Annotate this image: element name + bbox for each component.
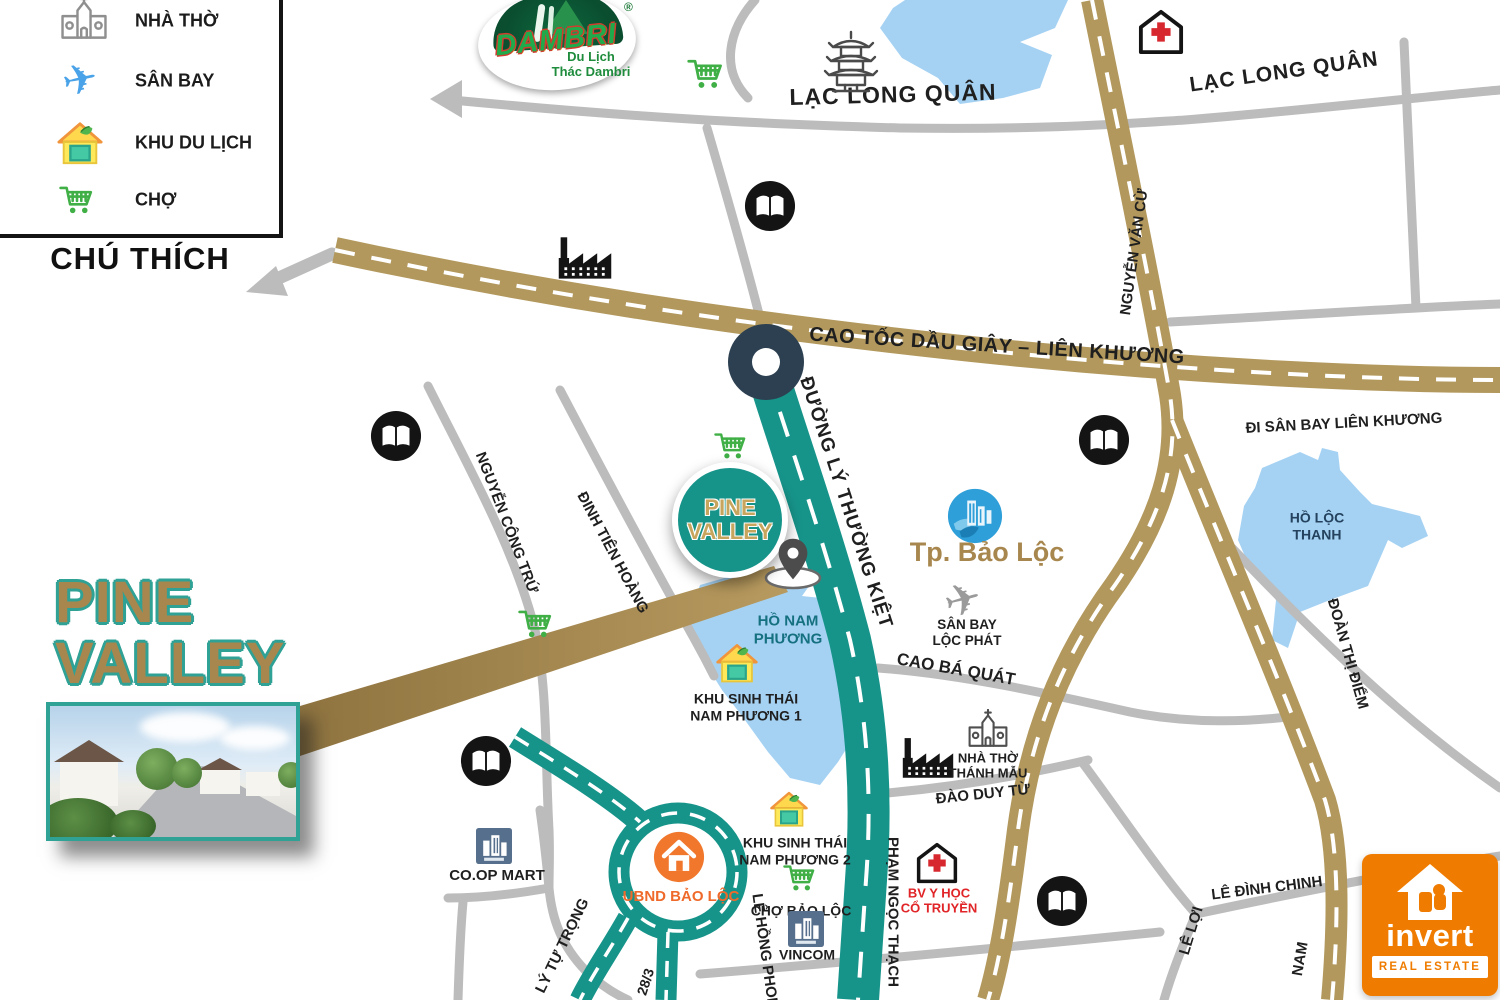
nha-tho-thanh-mau-label: NHÀ THỜTHÁNH MẪU <box>949 751 1028 782</box>
coop-mart-label: CO.OP MART <box>449 868 545 885</box>
project-title-line2: VALLEY <box>55 633 286 694</box>
project-photo <box>46 702 300 841</box>
coop-mart-building-icon <box>476 828 512 864</box>
road-label-pham-ngoc-thach: PHẠM NGỌC THẠCH <box>884 837 901 987</box>
market-cart-icon <box>713 428 749 464</box>
road-pagoda-loop <box>730 0 755 98</box>
invert-house-thumb-icon <box>1393 862 1467 922</box>
market-cart-icon <box>58 181 96 219</box>
invert-logo: invert REAL ESTATE <box>1362 854 1498 996</box>
market-cart-icon <box>686 54 726 94</box>
airport-label: SÂN BAYLỘC PHÁT <box>933 617 1002 649</box>
school-book-icon <box>1036 875 1088 927</box>
tourism-area-icon <box>55 119 105 167</box>
lake-label-ho-nam-phuong: HỒ NAMPHƯƠNG <box>754 612 823 647</box>
school-book-icon <box>370 410 422 462</box>
project-title: PINE VALLEY <box>55 572 286 695</box>
pine-valley-badge-line1: PINE <box>704 496 755 520</box>
arrow-head-west-road <box>430 80 462 118</box>
road-right-horizontal <box>1170 304 1500 322</box>
highway-roundabout-center <box>752 348 780 376</box>
legend-title: CHÚ THÍCH <box>50 241 230 277</box>
dambri-tagline-1: Du Lịch <box>550 50 632 65</box>
ubnd-label: UBND BẢO LỘC <box>623 889 740 906</box>
location-pin-icon <box>776 537 810 581</box>
road-coop-branch-west <box>448 888 549 898</box>
pine-valley-badge-line2: VALLEY <box>687 520 772 544</box>
vincom-label: VINCOM <box>779 947 835 962</box>
vincom-building-icon <box>788 911 824 947</box>
school-book-icon <box>460 735 512 787</box>
pagoda-icon <box>821 30 881 94</box>
church-icon <box>964 709 1012 749</box>
legend-item-label: CHỢ <box>135 190 176 211</box>
hospital-icon <box>1138 9 1184 55</box>
market-cart-icon <box>517 605 555 643</box>
legend-item-label: SÂN BAY <box>135 71 214 92</box>
pine-valley-badge: PINE VALLEY <box>672 462 788 578</box>
school-book-icon <box>1078 414 1130 466</box>
ubnd-icon <box>653 831 705 883</box>
road-teal-branch-west <box>515 737 640 822</box>
factory-icon <box>555 234 615 281</box>
road-right-vertical <box>1404 42 1416 308</box>
khu-sinh-thai-1-label: KHU SINH THÁINAM PHƯƠNG 1 <box>690 690 801 723</box>
project-title-line1: PINE <box>55 572 286 633</box>
dambri-tagline-2: Thác Dambri <box>550 65 632 80</box>
church-icon <box>56 0 112 42</box>
bv-y-hoc-label: BV Y HỌCCỔ TRUYỀN <box>901 886 978 917</box>
dambri-registered-mark: ® <box>624 0 633 14</box>
bao-loc-location-map: ✈ NHÀ THỜ SÂN BAY KHU DU LỊCH CHỢ CHÚ TH… <box>0 0 1500 1000</box>
road-coop-branch-south <box>458 902 463 1000</box>
invert-tagline: REAL ESTATE <box>1372 956 1488 978</box>
lake-label-ho-loc-thanh: HỒ LỘCTHANH <box>1290 509 1344 542</box>
legend-item-label: KHU DU LỊCH <box>135 133 252 154</box>
tourism-area-icon <box>714 641 760 685</box>
city-label: Tp. Bảo Lộc <box>910 538 1065 568</box>
invert-name: invert <box>1362 920 1498 951</box>
dambri-logo: DAMBRI ® Du Lịch Thác Dambri <box>478 0 638 92</box>
legend-item-label: NHÀ THỜ <box>135 11 218 32</box>
market-cart-icon <box>782 860 818 896</box>
school-book-icon <box>744 180 796 232</box>
hospital-icon <box>916 842 958 884</box>
tourism-area-icon <box>768 789 810 829</box>
road-to-le-dinh-chinh <box>1082 762 1196 914</box>
